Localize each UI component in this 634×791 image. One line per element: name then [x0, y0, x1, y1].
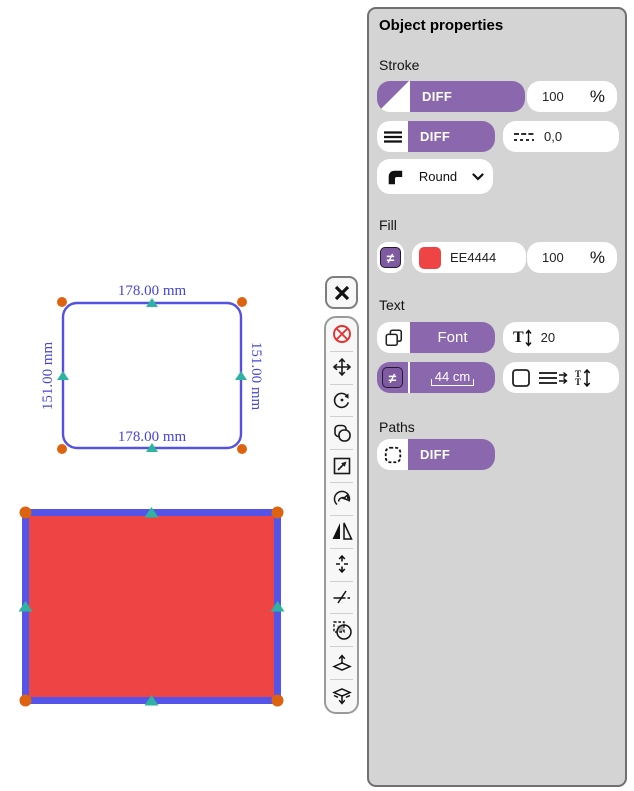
stroke-dash-value: 0,0 [544, 129, 562, 144]
dimension-label-height-left: 151.00 mm [40, 342, 56, 411]
fill-color-swatch [419, 247, 441, 269]
text-height-icon: TT [575, 368, 592, 388]
text-offset-value: 44 cm [431, 369, 474, 386]
lower-icon [331, 685, 353, 707]
percent-icon: % [590, 87, 605, 107]
fill-opacity-value: 100 [542, 250, 564, 265]
dash-pattern-icon [513, 130, 535, 144]
font-button[interactable]: Font [377, 322, 495, 353]
round-join-icon [386, 168, 404, 186]
tool-cut[interactable] [326, 581, 357, 614]
tool-rotate[interactable] [326, 384, 357, 417]
stroke-opacity-value: 100 [542, 89, 564, 104]
fill-even-odd-button[interactable]: ≠ [377, 242, 404, 273]
tool-cancel[interactable] [326, 318, 357, 351]
dimension-label-height-right: 151.00 mm [248, 342, 264, 411]
panel-title: Object properties [379, 17, 503, 34]
scale-icon [331, 455, 353, 477]
fill-opacity-field[interactable]: 100 % [527, 242, 617, 273]
dimension-label-width-top: 178.00 mm [118, 283, 187, 299]
paths-section-label: Paths [379, 419, 415, 435]
mask-icon [331, 619, 353, 641]
font-size-icon: T [513, 329, 533, 347]
stroke-width-button-label: DIFF [420, 129, 450, 144]
selected-rounded-rect[interactable]: 178.00 mm 178.00 mm 151.00 mm 151.00 mm [40, 280, 270, 467]
text-section-label: Text [379, 297, 405, 313]
not-equal-icon: ≠ [380, 247, 401, 268]
corner-handle[interactable] [57, 297, 67, 307]
tool-mask[interactable] [326, 613, 357, 646]
move-icon [331, 356, 353, 378]
stroke-color-swatch-icon [377, 81, 410, 112]
tool-raise[interactable] [326, 646, 357, 679]
raise-icon [331, 652, 353, 674]
font-size-value: 20 [541, 330, 555, 345]
distort-icon [331, 488, 353, 510]
corner-handle[interactable] [237, 297, 247, 307]
corner-handle[interactable] [57, 444, 67, 454]
pages-icon [377, 322, 410, 353]
corner-handle[interactable] [237, 444, 247, 454]
tool-flip-vertical[interactable] [326, 548, 357, 581]
stroke-opacity-field[interactable]: 100 % [527, 81, 617, 112]
rotate-icon [331, 389, 353, 411]
corner-handle[interactable] [272, 695, 284, 707]
midpoint-handle[interactable] [57, 371, 69, 380]
cancel-icon [331, 323, 353, 345]
transform-toolbar [324, 316, 359, 714]
tool-scale[interactable] [326, 449, 357, 482]
line-spacing-icon [538, 369, 568, 387]
close-icon [332, 283, 352, 303]
stroke-join-value: Round [413, 169, 463, 184]
red-rectangle[interactable] [26, 513, 278, 701]
paths-diff-button-label: DIFF [420, 447, 450, 462]
dashed-path-icon [377, 439, 408, 470]
percent-icon: % [590, 248, 605, 268]
tool-clone[interactable] [326, 416, 357, 449]
text-spacing-field[interactable]: TT [503, 362, 619, 393]
red-rectangle-shape[interactable] [12, 502, 297, 714]
stroke-color-button[interactable]: DIFF [377, 81, 525, 112]
corner-handle[interactable] [20, 695, 32, 707]
clone-icon [331, 422, 353, 444]
font-button-label: Font [437, 329, 467, 346]
text-offset-button[interactable]: ≠ 44 cm [377, 362, 495, 393]
stroke-join-select[interactable]: Round [377, 159, 493, 194]
fill-color-field[interactable]: EE4444 [412, 242, 526, 273]
stroke-width-button[interactable]: DIFF [377, 121, 495, 152]
chevron-down-icon [472, 173, 484, 181]
flip-vertical-icon [331, 553, 353, 575]
object-properties-panel: Object properties Stroke DIFF 100 % DIFF [367, 7, 627, 787]
corner-handle[interactable] [272, 507, 284, 519]
tool-lower[interactable] [326, 679, 357, 712]
mirror-horizontal-icon [331, 520, 353, 542]
fill-section-label: Fill [379, 217, 397, 233]
close-toolbar-button[interactable] [325, 276, 358, 309]
dimension-label-width-bottom: 178.00 mm [118, 429, 187, 445]
rounded-rect-outline[interactable] [63, 303, 241, 448]
frame-icon [511, 368, 531, 388]
stroke-dash-field[interactable]: 0,0 [503, 121, 619, 152]
stroke-color-button-label: DIFF [422, 89, 452, 104]
midpoint-handle[interactable] [235, 371, 247, 380]
paths-diff-button[interactable]: DIFF [377, 439, 495, 470]
tool-move[interactable] [326, 351, 357, 384]
font-size-field[interactable]: T 20 [503, 322, 619, 353]
tool-mirror-horizontal[interactable] [326, 515, 357, 548]
tool-distort[interactable] [326, 482, 357, 515]
stroke-section-label: Stroke [379, 57, 419, 73]
stroke-width-icon [377, 121, 408, 152]
fill-color-hex: EE4444 [450, 250, 496, 265]
corner-handle[interactable] [20, 507, 32, 519]
cut-icon [331, 586, 353, 608]
not-equal-icon: ≠ [377, 362, 408, 393]
